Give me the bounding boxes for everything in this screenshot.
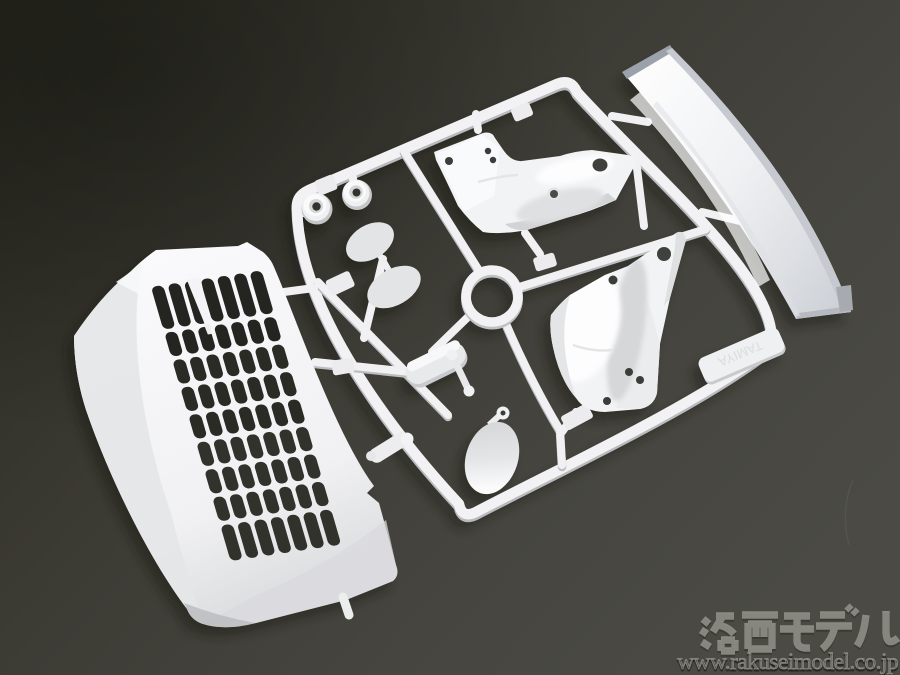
svg-text:www.rakuseimodel.co.jp: www.rakuseimodel.co.jp bbox=[677, 649, 898, 675]
